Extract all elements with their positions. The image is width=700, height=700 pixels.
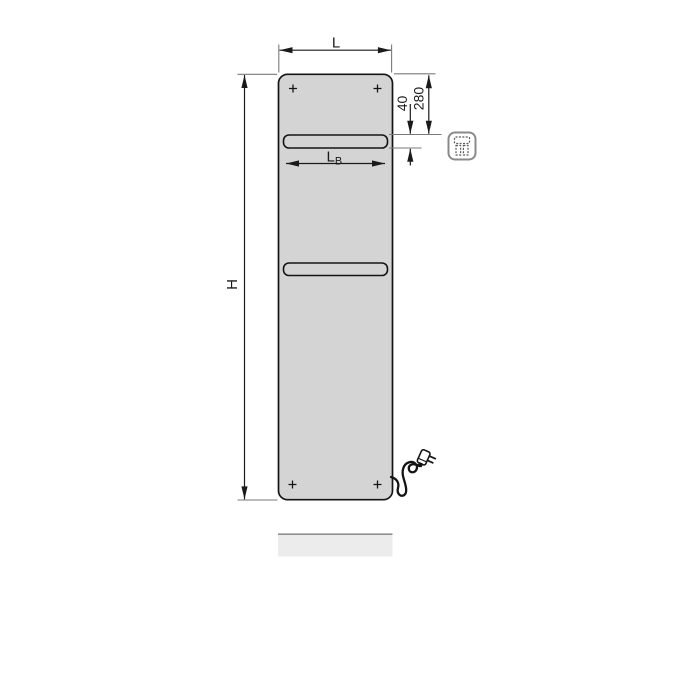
electric-icon-pin-right [463, 146, 468, 156]
technical-drawing-canvas: L H LB 280 40 [0, 0, 700, 700]
label-bar-opening: 40 [394, 96, 410, 112]
label-top-distance: 280 [410, 87, 426, 111]
towel-bar-slot-lower [284, 263, 388, 276]
power-cable [391, 449, 437, 496]
label-bar-width-main: L [327, 149, 335, 166]
dimension-width: L [279, 35, 392, 73]
radiator-panel [279, 74, 393, 499]
electric-plug-icon [449, 133, 476, 160]
label-bar-width-sub: B [335, 156, 342, 168]
label-height: H [224, 279, 241, 290]
electric-icon-pin-left [456, 146, 461, 156]
base-strip [278, 534, 393, 557]
cable-cord [391, 462, 420, 496]
electric-icon-socket [455, 137, 470, 144]
dimension-height: H [224, 74, 278, 500]
electric-icon-frame [449, 133, 476, 160]
base-strip-body [278, 534, 393, 557]
label-width: L [332, 35, 340, 52]
towel-bar-slot-upper [284, 135, 388, 148]
power-plug-icon [415, 449, 436, 471]
